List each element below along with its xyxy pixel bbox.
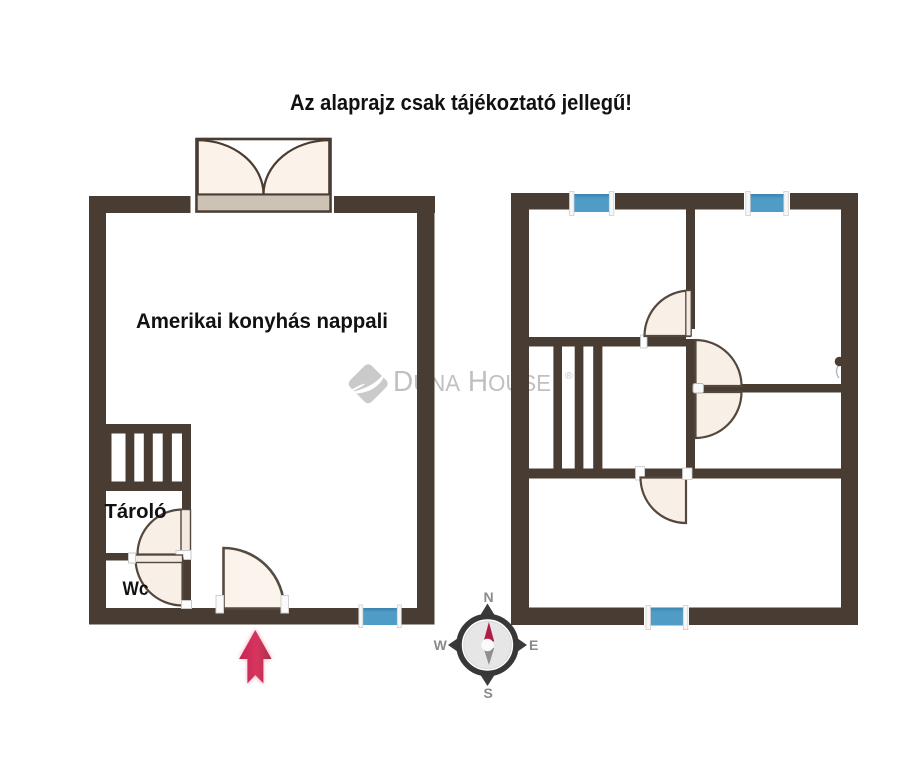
- svg-text:Amerikai konyhás nappali: Amerikai konyhás nappali: [136, 310, 388, 333]
- svg-text:Wc: Wc: [123, 579, 149, 600]
- svg-text:E: E: [529, 637, 538, 653]
- svg-text:W: W: [434, 637, 448, 653]
- svg-text:®: ®: [565, 370, 573, 382]
- svg-text:Tároló: Tároló: [105, 501, 167, 523]
- svg-text:S: S: [484, 685, 493, 701]
- svg-text:N: N: [484, 589, 494, 605]
- svg-text:Az alaprajz csak tájékoztató j: Az alaprajz csak tájékoztató jellegű!: [290, 90, 632, 115]
